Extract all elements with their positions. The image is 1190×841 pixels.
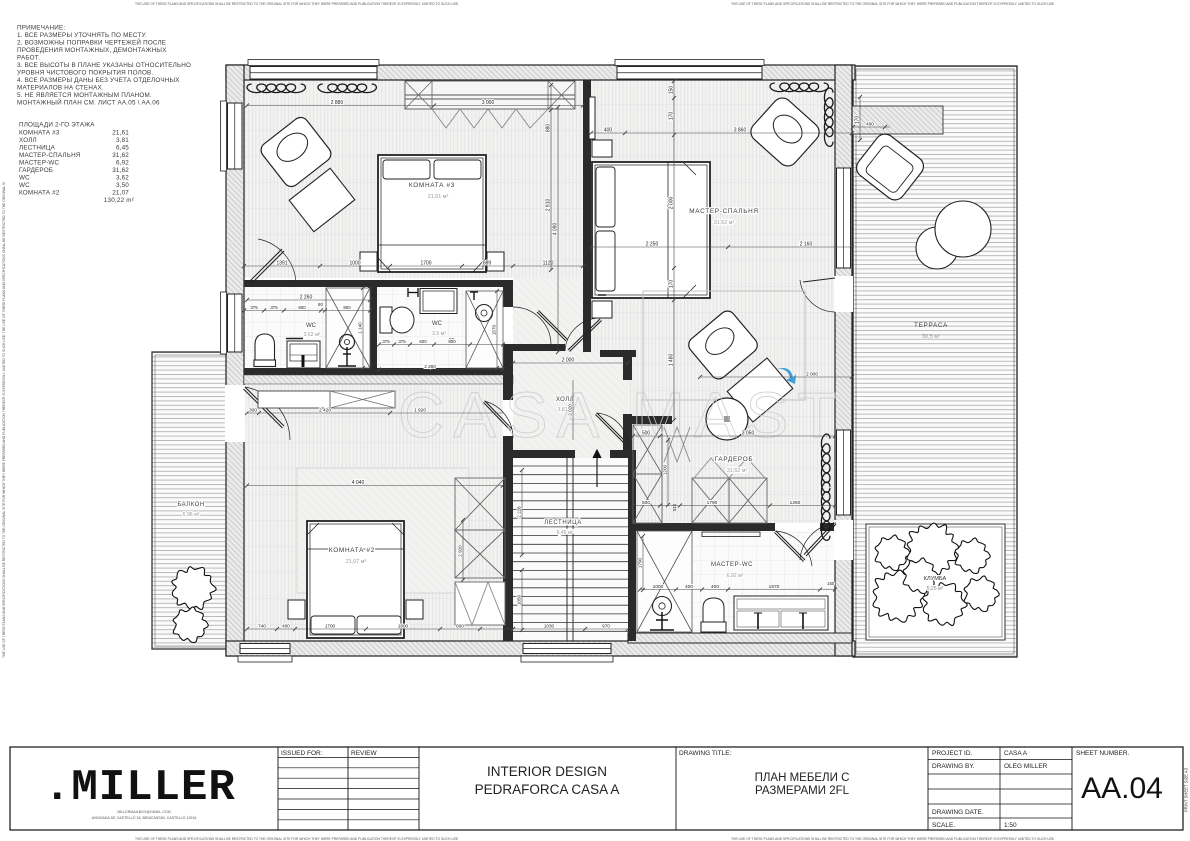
svg-text:1 920: 1 920 bbox=[414, 407, 426, 413]
svg-text:3,62 м²: 3,62 м² bbox=[304, 332, 321, 338]
svg-text:SCALE.: SCALE. bbox=[932, 822, 955, 829]
svg-text:КОМНАТА #2: КОМНАТА #2 bbox=[19, 190, 60, 197]
svg-text:31,62: 31,62 bbox=[112, 152, 129, 159]
svg-text:30,5 м²: 30,5 м² bbox=[922, 334, 940, 340]
svg-text:МАСТЕР-WC: МАСТЕР-WC bbox=[19, 160, 60, 167]
svg-text:SHEET NUMBER.: SHEET NUMBER. bbox=[1076, 750, 1130, 757]
svg-text:1:50: 1:50 bbox=[1004, 822, 1017, 829]
svg-text:400: 400 bbox=[282, 623, 290, 628]
svg-text:МАСТЕР-СПАЛЬНЯ: МАСТЕР-СПАЛЬНЯ bbox=[689, 208, 758, 215]
svg-text:800: 800 bbox=[448, 339, 456, 344]
svg-text:REVIEW: REVIEW bbox=[351, 750, 378, 757]
svg-text:ЛЕСТНИЦА: ЛЕСТНИЦА bbox=[544, 520, 582, 526]
svg-text:PEDRAFORCA CASA A: PEDRAFORCA CASA A bbox=[475, 782, 620, 797]
svg-text:THE USE OF THESE PLANS AND SPE: THE USE OF THESE PLANS AND SPECIFICATION… bbox=[731, 2, 1055, 6]
svg-text:31,62 м²: 31,62 м² bbox=[714, 220, 735, 226]
svg-text:400: 400 bbox=[604, 127, 613, 133]
svg-text:2 000: 2 000 bbox=[806, 371, 818, 377]
svg-text:1 480: 1 480 bbox=[668, 354, 674, 367]
svg-text:3 860: 3 860 bbox=[734, 127, 747, 133]
svg-text:МАСТЕР-СПАЛЬНЯ: МАСТЕР-СПАЛЬНЯ bbox=[19, 152, 81, 159]
svg-text:600: 600 bbox=[419, 339, 427, 344]
svg-text:DRAWING TITLE:: DRAWING TITLE: bbox=[679, 750, 732, 757]
svg-text:375: 375 bbox=[398, 339, 406, 344]
svg-text:КЛУМБА: КЛУМБА bbox=[924, 576, 947, 582]
svg-text:РАБОТ.: РАБОТ. bbox=[17, 55, 40, 62]
svg-text:80: 80 bbox=[318, 302, 323, 307]
svg-text:170: 170 bbox=[668, 280, 674, 289]
svg-text:1200: 1200 bbox=[662, 464, 667, 475]
svg-text:889: 889 bbox=[483, 260, 492, 266]
svg-text:ISSUED FOR:: ISSUED FOR: bbox=[281, 750, 323, 757]
svg-text:OLEG MILLER: OLEG MILLER bbox=[1004, 763, 1048, 770]
svg-text:КОМНАТА #2: КОМНАТА #2 bbox=[329, 547, 375, 554]
svg-text:2 260: 2 260 bbox=[424, 364, 436, 369]
svg-text:1. ВСЕ РАЗМЕРЫ УТОЧНЯТЬ ПО МЕС: 1. ВСЕ РАЗМЕРЫ УТОЧНЯТЬ ПО МЕСТУ. bbox=[17, 32, 147, 39]
svg-text:21,07 м²: 21,07 м² bbox=[346, 559, 367, 565]
svg-text:РАЗМЕРАМИ 2FL: РАЗМЕРАМИ 2FL bbox=[755, 785, 850, 797]
svg-text:1700: 1700 bbox=[420, 260, 431, 266]
svg-text:3,50: 3,50 bbox=[116, 182, 129, 189]
svg-text:2 000: 2 000 bbox=[668, 197, 674, 210]
svg-text:5. НЕ ЯВЛЯЕТСЯ МОНТАЖНЫМ ПЛАНО: 5. НЕ ЯВЛЯЕТСЯ МОНТАЖНЫМ ПЛАНОМ. bbox=[17, 92, 152, 99]
svg-text:375: 375 bbox=[250, 305, 258, 310]
svg-text:1570: 1570 bbox=[769, 584, 780, 590]
svg-text:THE USE OF THESE PLANS AND SPE: THE USE OF THESE PLANS AND SPECIFICATION… bbox=[2, 182, 6, 658]
svg-text:970: 970 bbox=[602, 623, 610, 628]
svg-text:31,62: 31,62 bbox=[112, 167, 129, 174]
svg-text:1570: 1570 bbox=[491, 324, 496, 335]
svg-text:170: 170 bbox=[668, 112, 674, 121]
svg-text:21,07: 21,07 bbox=[112, 190, 129, 197]
svg-text:ЛЕСТНИЦА: ЛЕСТНИЦА bbox=[19, 145, 56, 152]
svg-text:2 920: 2 920 bbox=[457, 545, 462, 557]
svg-text:AA.04: AA.04 bbox=[1081, 772, 1163, 805]
svg-text:AVINGADA DE CASTELLÓ 18, BENIC: AVINGADA DE CASTELLÓ 18, BENICÀSSIM, CAS… bbox=[92, 815, 197, 820]
svg-text:3 050: 3 050 bbox=[742, 430, 755, 436]
svg-text:.MILLER: .MILLER bbox=[44, 763, 236, 813]
svg-text:375: 375 bbox=[382, 339, 390, 344]
svg-text:2. ВОЗМОЖНЫ ПОПРАВКИ ЧЕРТЕЖЕЙ: 2. ВОЗМОЖНЫ ПОПРАВКИ ЧЕРТЕЖЕЙ ПОСЛЕ bbox=[17, 38, 166, 47]
svg-text:2 020: 2 020 bbox=[567, 404, 572, 416]
svg-text:PROJECT ID.: PROJECT ID. bbox=[932, 750, 973, 757]
svg-text:ПЛАН МЕБЕЛИ С: ПЛАН МЕБЕЛИ С bbox=[755, 772, 850, 784]
svg-text:THE USE OF THESE PLANS AND SPE: THE USE OF THESE PLANS AND SPECIFICATION… bbox=[135, 2, 459, 6]
svg-text:THE USE OF THESE PLANS AND SPE: THE USE OF THESE PLANS AND SPECIFICATION… bbox=[731, 837, 1055, 841]
svg-text:УРОВНЯ ЧИСТОВОГО ПОКРЫТИЯ ПОЛО: УРОВНЯ ЧИСТОВОГО ПОКРЫТИЯ ПОЛОВ. bbox=[17, 70, 153, 77]
svg-text:1700: 1700 bbox=[325, 623, 336, 628]
svg-text:1 140: 1 140 bbox=[357, 322, 362, 334]
svg-text:БАЛКОН: БАЛКОН bbox=[177, 502, 204, 508]
svg-text:150: 150 bbox=[668, 86, 674, 95]
svg-text:21,61: 21,61 bbox=[112, 130, 129, 137]
svg-text:740: 740 bbox=[258, 623, 266, 628]
svg-text:4 040: 4 040 bbox=[352, 480, 365, 486]
svg-text:3,5 м²: 3,5 м² bbox=[432, 331, 446, 337]
svg-text:CASA A: CASA A bbox=[1004, 750, 1028, 757]
svg-text:КОМНАТА #3: КОМНАТА #3 bbox=[409, 182, 455, 189]
svg-text:300: 300 bbox=[249, 407, 257, 413]
svg-text:МАСТЕР-WC: МАСТЕР-WC bbox=[711, 562, 753, 568]
svg-text:6,96 м²: 6,96 м² bbox=[183, 512, 200, 518]
svg-text:6,45: 6,45 bbox=[116, 145, 129, 152]
svg-text:DRAWING BY.: DRAWING BY. bbox=[932, 763, 975, 770]
svg-text:21,61 м²: 21,61 м² bbox=[428, 194, 449, 200]
svg-text:6,92 м²: 6,92 м² bbox=[727, 573, 744, 579]
svg-text:600: 600 bbox=[298, 305, 306, 310]
svg-text:THE USE OF THESE PLANS AND SPE: THE USE OF THESE PLANS AND SPECIFICATION… bbox=[135, 837, 459, 841]
svg-text:WC: WC bbox=[19, 175, 30, 182]
svg-text:1050: 1050 bbox=[516, 594, 521, 605]
svg-text:2 250: 2 250 bbox=[646, 241, 659, 247]
svg-text:3,81: 3,81 bbox=[116, 137, 129, 144]
svg-text:1000: 1000 bbox=[349, 260, 360, 266]
svg-text:500: 500 bbox=[642, 430, 651, 436]
svg-text:2 880: 2 880 bbox=[331, 100, 344, 106]
svg-text:170: 170 bbox=[854, 116, 860, 125]
svg-text:ТЕРРАСА: ТЕРРАСА bbox=[914, 322, 948, 329]
svg-text:6,45 м²: 6,45 м² bbox=[557, 530, 574, 536]
svg-text:1790: 1790 bbox=[707, 500, 718, 506]
svg-text:ГАРДЕРОБ: ГАРДЕРОБ bbox=[19, 167, 53, 174]
svg-text:1260: 1260 bbox=[790, 500, 801, 506]
svg-text:400: 400 bbox=[685, 584, 693, 590]
svg-text:3. ВСЕ ВЫСОТЫ В ПЛАНЕ УКАЗАНЫ: 3. ВСЕ ВЫСОТЫ В ПЛАНЕ УКАЗАНЫ ОТНОСИТЕЛЬ… bbox=[17, 62, 191, 69]
svg-text:DRAWING DATE.: DRAWING DATE. bbox=[932, 809, 984, 816]
svg-text:ХОЛЛ: ХОЛЛ bbox=[19, 137, 37, 144]
svg-text:WC: WC bbox=[306, 323, 317, 329]
svg-text:КОМНАТА #3: КОМНАТА #3 bbox=[19, 130, 60, 137]
svg-text:400: 400 bbox=[711, 584, 719, 590]
svg-text:800: 800 bbox=[456, 623, 464, 628]
svg-text:130,22 m²: 130,22 m² bbox=[104, 197, 134, 204]
svg-text:6,92: 6,92 bbox=[116, 160, 129, 167]
svg-text:510: 510 bbox=[672, 503, 677, 511]
svg-text:880: 880 bbox=[545, 124, 551, 133]
svg-text:2 910: 2 910 bbox=[545, 199, 551, 212]
svg-text:31,62 м²: 31,62 м² bbox=[727, 468, 748, 474]
svg-text:WC: WC bbox=[432, 321, 443, 327]
svg-text:INTERIOR DESIGN: INTERIOR DESIGN bbox=[487, 764, 607, 779]
svg-text:ГАРДЕРОБ: ГАРДЕРОБ bbox=[715, 456, 754, 463]
svg-text:150: 150 bbox=[827, 581, 835, 586]
svg-text:3,62: 3,62 bbox=[116, 175, 129, 182]
svg-text:ПЛОЩАДИ 2-ГО ЭТАЖА: ПЛОЩАДИ 2-ГО ЭТАЖА bbox=[19, 122, 95, 129]
svg-text:4. ВСЕ РАЗМЕРЫ ДАНЫ БЕЗ УЧЕТА: 4. ВСЕ РАЗМЕРЫ ДАНЫ БЕЗ УЧЕТА ОТДЕЛОЧНЫХ bbox=[17, 77, 180, 84]
svg-text:2 226: 2 226 bbox=[516, 506, 521, 518]
svg-text:1030: 1030 bbox=[544, 623, 555, 628]
svg-text:5,25 м²: 5,25 м² bbox=[927, 586, 944, 592]
svg-text:4 090: 4 090 bbox=[552, 223, 558, 236]
svg-text:1391: 1391 bbox=[276, 260, 287, 266]
svg-text:500: 500 bbox=[642, 500, 650, 506]
svg-text:2 260: 2 260 bbox=[300, 294, 313, 300]
svg-text:1120: 1120 bbox=[543, 260, 554, 266]
svg-text:375: 375 bbox=[270, 305, 278, 310]
svg-text:МАТЕРИАЛОВ НА СТЕНАХ.: МАТЕРИАЛОВ НА СТЕНАХ. bbox=[17, 85, 104, 92]
svg-text:1790: 1790 bbox=[637, 557, 642, 568]
svg-text:МОНТАЖНЫЙ ПЛАН СМ. ЛИСТ АА.05: МОНТАЖНЫЙ ПЛАН СМ. ЛИСТ АА.05 \ АА.06 bbox=[17, 98, 160, 107]
svg-text:MILLERMAILBOX@GMAIL.COM: MILLERMAILBOX@GMAIL.COM bbox=[117, 810, 170, 814]
svg-text:3 000: 3 000 bbox=[482, 100, 495, 106]
svg-text:800: 800 bbox=[343, 305, 351, 310]
svg-text:2 160: 2 160 bbox=[800, 241, 813, 247]
svg-text:400: 400 bbox=[866, 121, 874, 126]
svg-text:ПРИМЕЧАНИЕ:: ПРИМЕЧАНИЕ: bbox=[17, 25, 65, 32]
svg-text:2 000: 2 000 bbox=[562, 357, 575, 363]
svg-text:ПРОВЕДЕНИЯ МОНТАЖНЫХ, ДЕМОНТАЖ: ПРОВЕДЕНИЯ МОНТАЖНЫХ, ДЕМОНТАЖНЫХ bbox=[17, 47, 167, 54]
svg-text:PRINT SHEET SIZE A3: PRINT SHEET SIZE A3 bbox=[1184, 767, 1189, 812]
svg-text:2 420: 2 420 bbox=[319, 407, 331, 413]
svg-text:CASA MAST: CASA MAST bbox=[398, 379, 845, 451]
svg-text:WC: WC bbox=[19, 182, 30, 189]
svg-text:1800: 1800 bbox=[398, 623, 409, 628]
svg-text:1000: 1000 bbox=[653, 584, 664, 590]
